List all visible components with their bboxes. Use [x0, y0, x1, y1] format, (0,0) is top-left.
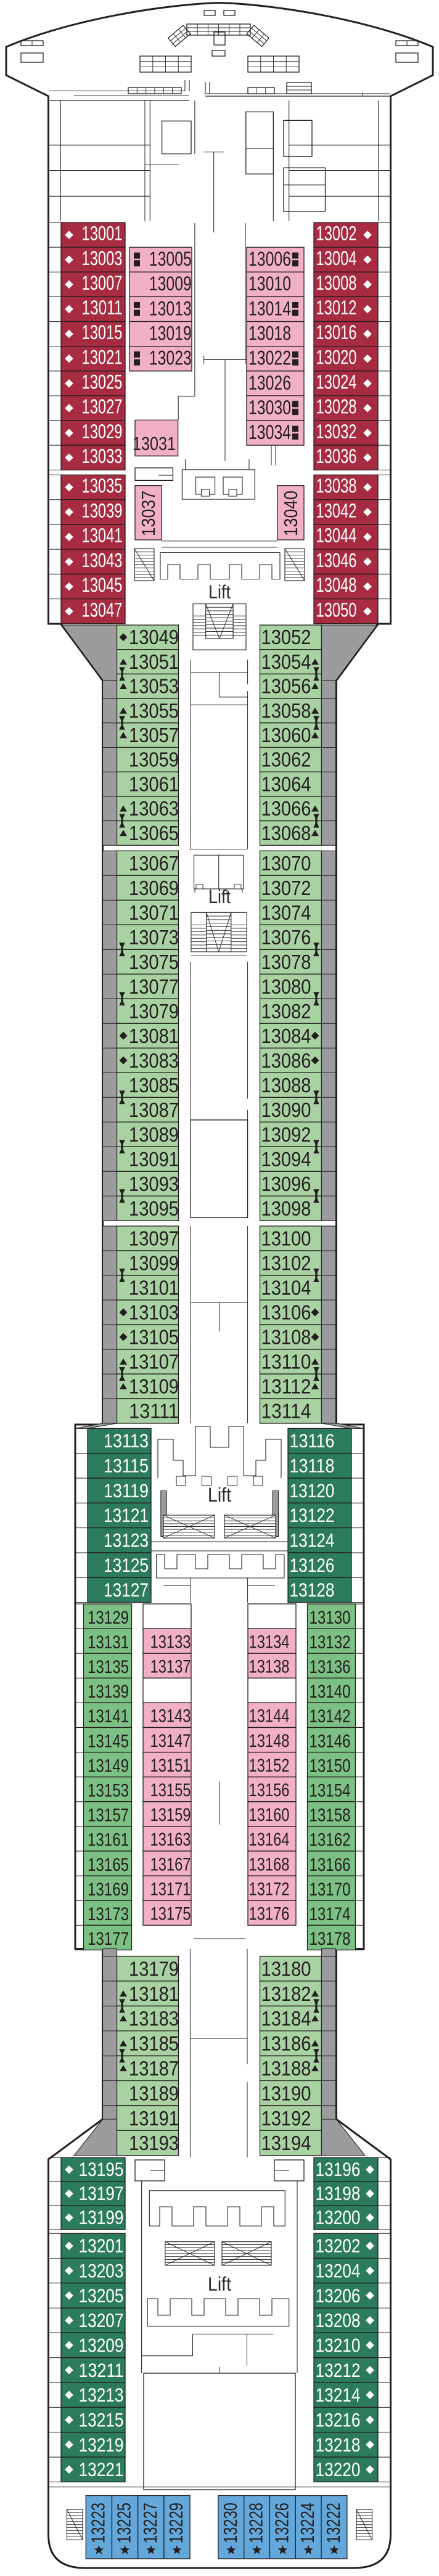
svg-text:13192: 13192	[261, 2107, 311, 2130]
svg-text:13211: 13211	[79, 2359, 124, 2381]
svg-text:13047: 13047	[82, 599, 123, 621]
svg-text:13200: 13200	[316, 2206, 361, 2228]
svg-text:13145: 13145	[88, 1731, 129, 1751]
svg-text:13184: 13184	[261, 2007, 311, 2030]
svg-text:13180: 13180	[261, 1957, 311, 1980]
svg-text:13092: 13092	[261, 1123, 311, 1146]
svg-text:13202: 13202	[316, 2235, 361, 2257]
svg-text:13036: 13036	[316, 445, 357, 467]
svg-text:13169: 13169	[88, 1879, 129, 1900]
svg-text:13216: 13216	[316, 2409, 361, 2431]
svg-text:13091: 13091	[129, 1148, 179, 1171]
svg-text:13148: 13148	[249, 1731, 290, 1751]
svg-text:13031: 13031	[133, 433, 176, 454]
svg-text:13083: 13083	[129, 1049, 179, 1072]
svg-text:13185: 13185	[129, 2032, 179, 2055]
svg-text:13227: 13227	[140, 2503, 161, 2543]
svg-text:13128: 13128	[290, 1579, 335, 1601]
svg-text:13028: 13028	[316, 396, 357, 418]
svg-text:13006: 13006	[248, 248, 291, 270]
svg-text:13174: 13174	[310, 1904, 351, 1924]
svg-text:13159: 13159	[150, 1805, 191, 1825]
svg-text:13081: 13081	[129, 1024, 179, 1047]
svg-text:13055: 13055	[129, 699, 179, 722]
svg-text:13126: 13126	[290, 1554, 335, 1576]
svg-text:13039: 13039	[82, 499, 123, 521]
svg-text:13064: 13064	[261, 772, 311, 795]
svg-text:13158: 13158	[310, 1805, 351, 1826]
svg-text:13111: 13111	[129, 1400, 179, 1423]
svg-text:Lift: Lift	[208, 2273, 231, 2295]
svg-text:13228: 13228	[246, 2503, 267, 2543]
svg-text:13175: 13175	[150, 1904, 191, 1924]
svg-text:13019: 13019	[149, 322, 192, 345]
svg-text:13108: 13108	[261, 1326, 311, 1349]
svg-text:13219: 13219	[79, 2434, 124, 2456]
svg-text:13146: 13146	[310, 1731, 351, 1751]
svg-text:13087: 13087	[129, 1098, 179, 1121]
svg-text:13208: 13208	[316, 2309, 361, 2331]
svg-text:13163: 13163	[150, 1830, 191, 1850]
svg-text:13176: 13176	[249, 1904, 290, 1924]
svg-text:13078: 13078	[261, 951, 311, 973]
svg-text:13103: 13103	[129, 1301, 179, 1324]
svg-text:13198: 13198	[316, 2182, 361, 2204]
svg-text:13002: 13002	[316, 223, 357, 245]
svg-text:13057: 13057	[129, 724, 179, 746]
svg-text:13150: 13150	[310, 1756, 351, 1776]
svg-text:13082: 13082	[261, 1000, 311, 1023]
svg-text:13095: 13095	[129, 1197, 179, 1220]
svg-text:13189: 13189	[129, 2082, 179, 2104]
svg-text:13131: 13131	[88, 1632, 129, 1653]
svg-text:13025: 13025	[82, 371, 123, 393]
svg-text:13123: 13123	[104, 1529, 149, 1552]
svg-text:13009: 13009	[149, 272, 192, 295]
svg-text:13153: 13153	[88, 1781, 129, 1801]
svg-text:13079: 13079	[129, 1000, 179, 1023]
svg-text:13074: 13074	[261, 901, 311, 924]
svg-text:13113: 13113	[104, 1429, 149, 1452]
svg-text:13115: 13115	[104, 1455, 149, 1477]
svg-text:13076: 13076	[261, 926, 311, 949]
svg-text:13038: 13038	[316, 475, 357, 497]
svg-text:13001: 13001	[82, 223, 123, 245]
svg-text:13214: 13214	[316, 2384, 361, 2406]
svg-text:13154: 13154	[310, 1781, 351, 1801]
svg-text:13125: 13125	[104, 1554, 149, 1576]
svg-text:13156: 13156	[249, 1780, 290, 1801]
svg-text:13049: 13049	[129, 626, 179, 648]
svg-text:13080: 13080	[261, 975, 311, 998]
svg-text:13040: 13040	[281, 491, 302, 536]
svg-text:13013: 13013	[149, 297, 192, 319]
svg-text:13070: 13070	[261, 852, 311, 875]
svg-text:13179: 13179	[129, 1957, 179, 1980]
svg-text:13221: 13221	[79, 2458, 124, 2480]
svg-text:13088: 13088	[261, 1074, 311, 1097]
svg-text:13065: 13065	[129, 822, 179, 844]
svg-text:13183: 13183	[129, 2007, 179, 2030]
svg-text:13187: 13187	[129, 2057, 179, 2080]
svg-text:13061: 13061	[129, 772, 179, 795]
svg-text:13060: 13060	[261, 724, 311, 746]
svg-text:13059: 13059	[129, 748, 179, 771]
svg-text:13068: 13068	[261, 822, 311, 844]
svg-text:13114: 13114	[261, 1400, 311, 1423]
svg-text:13022: 13022	[248, 347, 291, 369]
svg-text:13151: 13151	[150, 1756, 191, 1776]
svg-text:13144: 13144	[249, 1706, 290, 1727]
svg-text:13177: 13177	[88, 1929, 129, 1949]
svg-text:13012: 13012	[316, 296, 357, 319]
svg-text:13155: 13155	[150, 1780, 191, 1801]
svg-text:13135: 13135	[88, 1657, 129, 1677]
svg-text:13147: 13147	[150, 1731, 191, 1751]
svg-text:13020: 13020	[316, 346, 357, 368]
svg-text:Lift: Lift	[208, 1484, 231, 1506]
svg-text:13161: 13161	[88, 1830, 129, 1850]
svg-text:13048: 13048	[316, 574, 357, 596]
svg-text:13101: 13101	[129, 1277, 179, 1299]
svg-text:13116: 13116	[290, 1429, 335, 1452]
svg-text:13215: 13215	[79, 2409, 124, 2431]
svg-text:13056: 13056	[261, 675, 311, 698]
svg-text:13182: 13182	[261, 1982, 311, 2005]
svg-text:13149: 13149	[88, 1756, 129, 1776]
svg-text:13193: 13193	[129, 2132, 179, 2154]
svg-text:13016: 13016	[316, 321, 357, 343]
svg-text:13051: 13051	[129, 650, 179, 673]
svg-text:13205: 13205	[79, 2284, 124, 2307]
svg-text:13018: 13018	[248, 322, 291, 345]
svg-text:13142: 13142	[310, 1706, 351, 1727]
svg-text:13152: 13152	[249, 1756, 290, 1776]
svg-text:13085: 13085	[129, 1074, 179, 1097]
svg-text:13077: 13077	[129, 975, 179, 998]
svg-text:13046: 13046	[316, 549, 357, 571]
svg-text:13029: 13029	[82, 420, 123, 443]
svg-text:13166: 13166	[310, 1855, 351, 1875]
svg-text:13194: 13194	[261, 2132, 311, 2154]
svg-text:13105: 13105	[129, 1326, 179, 1349]
svg-text:13173: 13173	[88, 1904, 129, 1924]
svg-text:13062: 13062	[261, 748, 311, 771]
svg-text:13207: 13207	[79, 2309, 124, 2331]
svg-text:13093: 13093	[129, 1172, 179, 1195]
svg-text:13191: 13191	[129, 2107, 179, 2130]
svg-text:13224: 13224	[297, 2503, 318, 2543]
svg-text:13063: 13063	[129, 797, 179, 820]
svg-text:13134: 13134	[249, 1632, 290, 1652]
svg-text:13140: 13140	[310, 1682, 351, 1702]
svg-text:13139: 13139	[88, 1682, 129, 1702]
svg-text:Lift: Lift	[208, 581, 231, 603]
svg-text:13023: 13023	[149, 347, 192, 369]
svg-text:13024: 13024	[316, 371, 357, 393]
svg-text:13069: 13069	[129, 877, 179, 899]
svg-text:13054: 13054	[261, 650, 311, 673]
svg-text:13005: 13005	[149, 248, 192, 270]
svg-text:13086: 13086	[261, 1049, 311, 1072]
svg-text:13102: 13102	[261, 1252, 311, 1275]
svg-text:13195: 13195	[79, 2158, 124, 2180]
svg-text:13209: 13209	[79, 2334, 124, 2357]
svg-text:13107: 13107	[129, 1351, 179, 1373]
svg-text:13157: 13157	[88, 1805, 129, 1826]
svg-text:13197: 13197	[79, 2182, 124, 2204]
svg-text:13186: 13186	[261, 2032, 311, 2055]
svg-text:13007: 13007	[82, 272, 123, 294]
svg-text:13066: 13066	[261, 797, 311, 820]
svg-text:13027: 13027	[82, 396, 123, 418]
svg-text:13118: 13118	[290, 1455, 335, 1477]
svg-text:13037: 13037	[138, 491, 159, 536]
svg-text:13196: 13196	[316, 2158, 361, 2180]
svg-text:13004: 13004	[316, 247, 357, 269]
svg-text:13067: 13067	[129, 852, 179, 875]
svg-text:13106: 13106	[261, 1301, 311, 1324]
svg-text:13170: 13170	[310, 1879, 351, 1900]
svg-text:13188: 13188	[261, 2057, 311, 2080]
svg-text:13071: 13071	[129, 901, 179, 924]
svg-text:Lift: Lift	[208, 886, 231, 907]
svg-text:13058: 13058	[261, 699, 311, 722]
svg-text:13011: 13011	[82, 296, 123, 319]
svg-text:13213: 13213	[79, 2384, 124, 2406]
svg-text:13199: 13199	[79, 2206, 124, 2228]
svg-text:13160: 13160	[249, 1805, 290, 1825]
svg-text:13119: 13119	[104, 1479, 149, 1502]
svg-text:13084: 13084	[261, 1024, 311, 1047]
svg-text:13110: 13110	[261, 1351, 311, 1373]
svg-text:13136: 13136	[310, 1657, 351, 1677]
svg-text:13014: 13014	[248, 297, 291, 319]
svg-text:13167: 13167	[150, 1854, 191, 1875]
svg-text:13122: 13122	[290, 1504, 335, 1526]
svg-text:13043: 13043	[82, 549, 123, 571]
svg-text:13124: 13124	[290, 1529, 335, 1552]
svg-text:13015: 13015	[82, 321, 123, 343]
svg-text:13222: 13222	[323, 2503, 344, 2543]
svg-text:13203: 13203	[79, 2260, 124, 2282]
svg-text:13133: 13133	[150, 1632, 191, 1652]
svg-text:13204: 13204	[316, 2260, 361, 2282]
svg-text:13112: 13112	[261, 1375, 311, 1398]
svg-text:13190: 13190	[261, 2082, 311, 2104]
svg-text:13097: 13097	[129, 1227, 179, 1250]
svg-text:13099: 13099	[129, 1252, 179, 1275]
svg-text:13033: 13033	[82, 445, 123, 467]
svg-text:13096: 13096	[261, 1172, 311, 1195]
svg-text:13104: 13104	[261, 1277, 311, 1299]
svg-text:13127: 13127	[104, 1579, 149, 1601]
svg-text:13045: 13045	[82, 574, 123, 596]
svg-text:13230: 13230	[220, 2503, 241, 2543]
svg-text:13229: 13229	[166, 2503, 187, 2543]
svg-text:13072: 13072	[261, 877, 311, 899]
svg-text:13181: 13181	[129, 1982, 179, 2005]
svg-text:13137: 13137	[150, 1657, 191, 1677]
svg-text:13143: 13143	[150, 1706, 191, 1727]
svg-text:13225: 13225	[114, 2503, 135, 2543]
svg-text:13218: 13218	[316, 2434, 361, 2456]
svg-text:13162: 13162	[310, 1830, 351, 1850]
svg-text:13050: 13050	[316, 599, 357, 621]
svg-text:13120: 13120	[290, 1479, 335, 1502]
svg-text:13210: 13210	[316, 2334, 361, 2357]
svg-text:13042: 13042	[316, 499, 357, 521]
svg-text:13100: 13100	[261, 1227, 311, 1250]
svg-text:13109: 13109	[129, 1375, 179, 1398]
svg-text:13090: 13090	[261, 1098, 311, 1121]
svg-text:13172: 13172	[249, 1879, 290, 1899]
svg-text:13035: 13035	[82, 475, 123, 497]
svg-text:13132: 13132	[310, 1632, 351, 1653]
svg-text:13041: 13041	[82, 525, 123, 547]
svg-text:13089: 13089	[129, 1123, 179, 1146]
svg-text:13008: 13008	[316, 272, 357, 294]
svg-text:13094: 13094	[261, 1148, 311, 1171]
svg-text:13130: 13130	[310, 1608, 351, 1628]
svg-text:13032: 13032	[316, 420, 357, 443]
svg-text:13223: 13223	[88, 2503, 109, 2543]
svg-text:13138: 13138	[249, 1657, 290, 1677]
svg-text:13121: 13121	[104, 1504, 149, 1526]
svg-text:13201: 13201	[79, 2235, 124, 2257]
svg-text:13098: 13098	[261, 1197, 311, 1220]
svg-text:13030: 13030	[248, 396, 291, 419]
svg-text:13164: 13164	[249, 1830, 290, 1850]
svg-text:13165: 13165	[88, 1855, 129, 1875]
svg-text:13026: 13026	[248, 372, 291, 394]
svg-text:13141: 13141	[88, 1706, 129, 1727]
svg-text:13226: 13226	[271, 2503, 292, 2543]
svg-text:13220: 13220	[316, 2458, 361, 2480]
svg-text:13171: 13171	[150, 1879, 191, 1899]
svg-text:13178: 13178	[310, 1929, 351, 1949]
svg-text:13212: 13212	[316, 2359, 361, 2381]
svg-text:13010: 13010	[248, 272, 291, 295]
svg-text:13073: 13073	[129, 926, 179, 949]
svg-text:13129: 13129	[88, 1608, 129, 1628]
svg-text:13044: 13044	[316, 525, 357, 547]
svg-text:13003: 13003	[82, 247, 123, 269]
svg-text:13168: 13168	[249, 1854, 290, 1875]
svg-text:13034: 13034	[248, 421, 291, 443]
svg-text:13021: 13021	[82, 346, 123, 368]
svg-text:13052: 13052	[261, 626, 311, 648]
svg-text:13206: 13206	[316, 2284, 361, 2307]
svg-text:13053: 13053	[129, 675, 179, 698]
svg-text:13075: 13075	[129, 951, 179, 973]
